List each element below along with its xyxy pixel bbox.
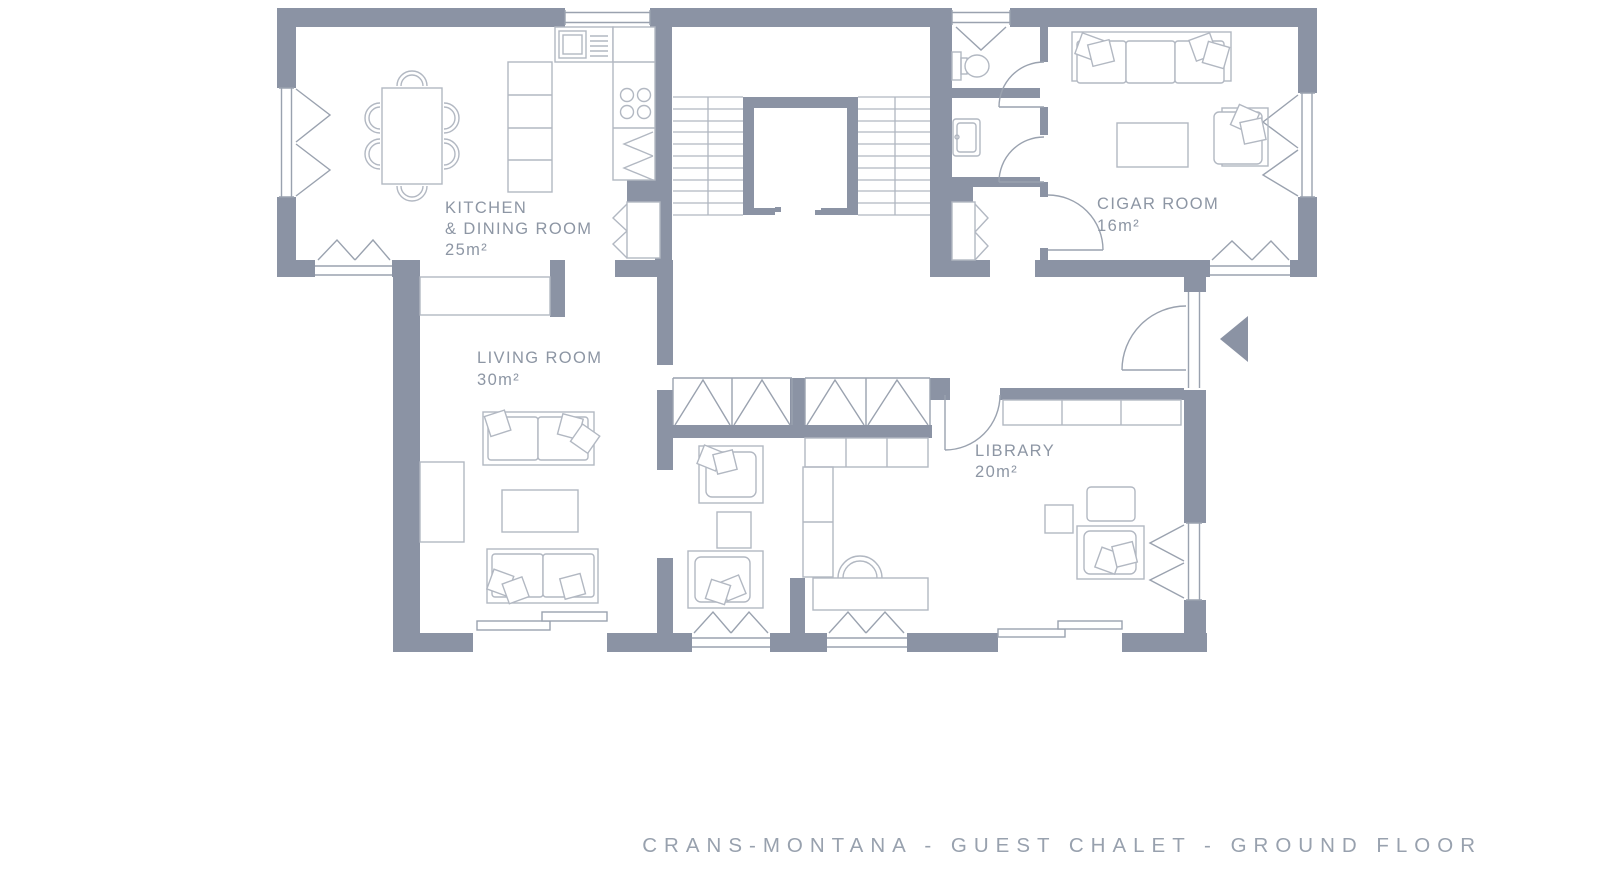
- pillow-icon: [560, 573, 586, 599]
- pillow-icon: [1112, 542, 1137, 567]
- nook-armchair-2: [688, 551, 763, 608]
- cigar-room-furniture: [1072, 32, 1268, 167]
- nook-armchair-1: [697, 445, 763, 503]
- kitchen-wall-counter: [613, 27, 655, 180]
- living-room-area: 30m²: [477, 371, 520, 389]
- library-right-window: [1150, 523, 1202, 600]
- desk-chair-icon: [838, 556, 882, 578]
- staircase-right-flight: [858, 97, 930, 215]
- living-sliding-door: [477, 612, 607, 630]
- wc-top-window: [952, 10, 1010, 50]
- study-desk: [813, 556, 928, 610]
- entrance-door: [1122, 306, 1248, 370]
- study-shelf-vertical: [803, 467, 833, 577]
- nook-bottom-window-1: [692, 612, 770, 647]
- entrance-glazing: [1189, 292, 1200, 388]
- living-room-furniture: [420, 277, 928, 610]
- cigar-room-area: 16m²: [1097, 217, 1140, 235]
- kitchen-label-line2: & DINING ROOM: [445, 220, 592, 238]
- cigar-right-window: [1263, 93, 1315, 197]
- living-console: [420, 462, 464, 542]
- wc-fixtures: [952, 52, 989, 156]
- entrance-arrow-icon: [1220, 316, 1248, 362]
- dining-table: [382, 88, 442, 184]
- elevator-shaft: [743, 97, 858, 215]
- library-bookshelf: [1003, 400, 1181, 425]
- kitchen-bottom-window: [315, 240, 392, 275]
- library-ottoman: [1087, 487, 1135, 521]
- kitchen-area: 25m²: [445, 241, 488, 259]
- study-cabinet-row: [805, 438, 928, 467]
- living-sofa-1: [483, 410, 600, 465]
- washroom-door: [999, 137, 1044, 182]
- kitchen-corner-cabinet: [613, 202, 660, 258]
- toilet-icon: [952, 52, 989, 80]
- floor-plan-canvas: KITCHEN & DINING ROOM 25m² CIGAR ROOM 16…: [0, 0, 1600, 869]
- library-furniture: [1003, 400, 1181, 579]
- library-area: 20m²: [975, 463, 1018, 481]
- kitchen-island-counter: [508, 62, 552, 192]
- kitchen-left-window: [279, 88, 330, 197]
- wc-door: [999, 62, 1044, 107]
- pillow-icon: [713, 450, 737, 474]
- library-sliding-door: [998, 621, 1122, 637]
- pillow-icon: [1240, 118, 1266, 144]
- library-label: LIBRARY: [975, 442, 1055, 460]
- kitchen-sink-unit: [555, 27, 613, 62]
- cigar-armchair: [1214, 104, 1268, 166]
- living-coffee-table: [502, 490, 578, 532]
- staircase-left-flight: [673, 97, 743, 215]
- library-side-table: [1045, 505, 1073, 533]
- living-sofa-2: [487, 549, 598, 604]
- nook-bottom-window-2: [827, 612, 907, 647]
- cigar-room-label: CIGAR ROOM: [1097, 195, 1219, 213]
- stair-hall-cabinet: [952, 202, 988, 260]
- nook-side-table: [717, 512, 751, 548]
- washbasin-icon: [953, 119, 980, 156]
- library-armchair: [1077, 526, 1144, 579]
- cigar-sofa: [1072, 32, 1231, 83]
- cigar-room-door: [1048, 195, 1103, 250]
- cigar-coffee-table: [1117, 123, 1188, 167]
- pillow-icon: [1088, 40, 1115, 67]
- living-room-label: LIVING ROOM: [477, 349, 602, 367]
- cigar-bottom-window: [1210, 241, 1290, 275]
- living-closet: [420, 277, 550, 315]
- plan-caption: CRANS-MONTANA - GUEST CHALET - GROUND FL…: [642, 834, 1482, 857]
- kitchen-label: KITCHEN: [445, 199, 527, 217]
